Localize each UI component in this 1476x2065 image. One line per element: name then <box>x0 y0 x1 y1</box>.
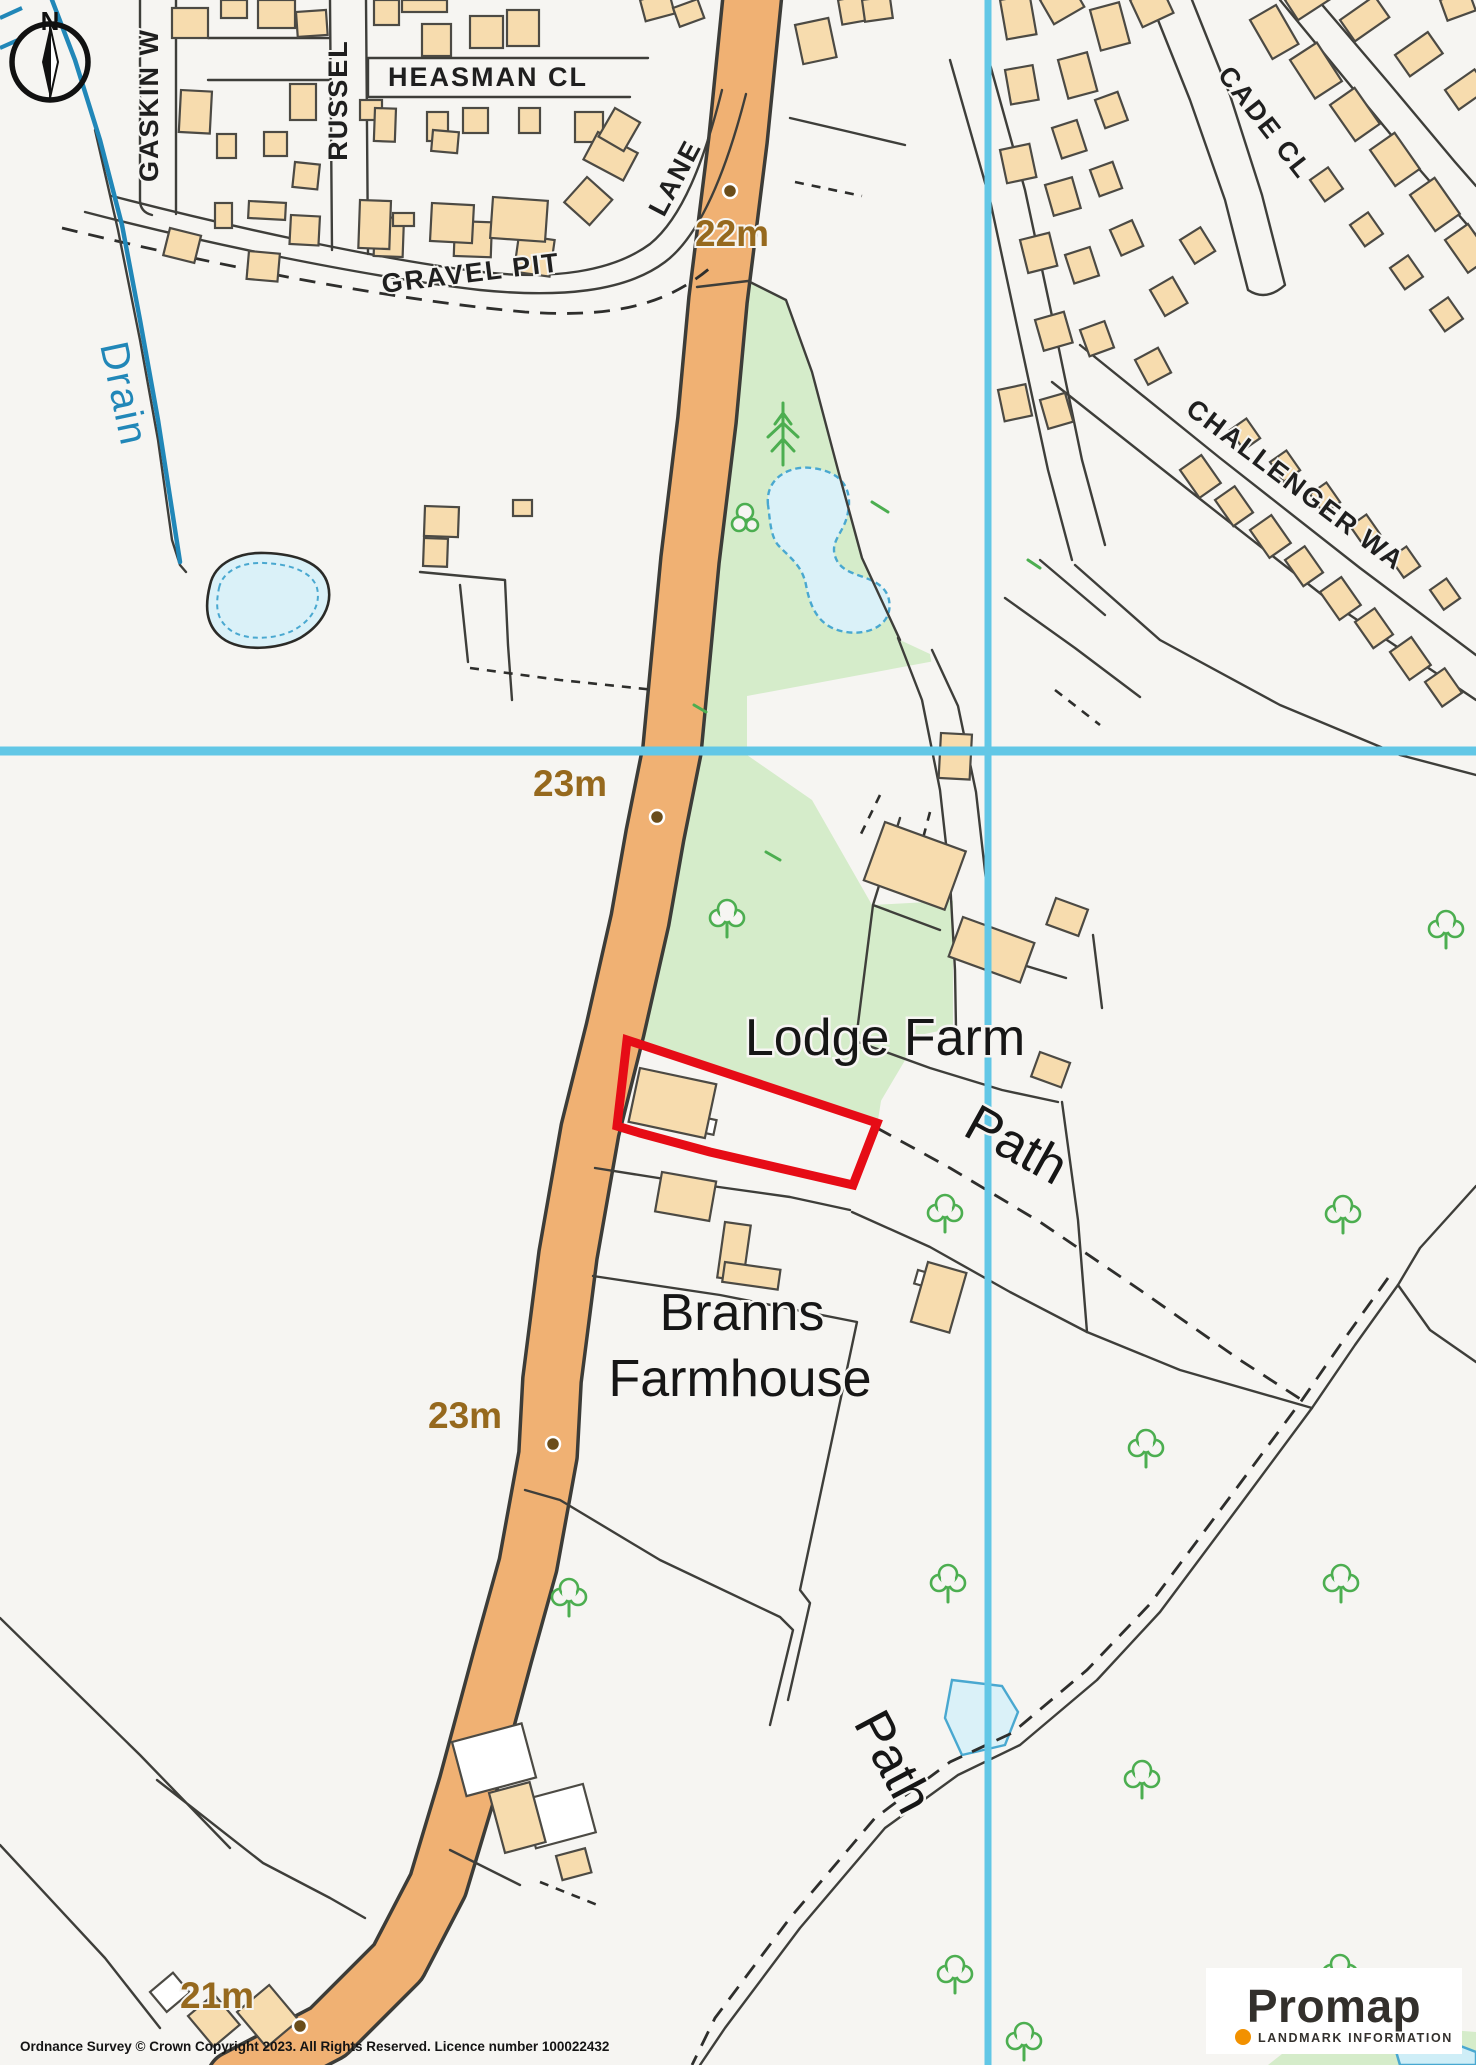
place-label-branns: Branns <box>660 1284 825 1342</box>
street-label-lane: LANE <box>643 135 708 221</box>
promap-orange-dot-icon <box>1235 2029 1251 2045</box>
place-label-farmhouse: Farmhouse <box>609 1350 872 1408</box>
elevation-label-21m: 21m <box>180 1975 254 2016</box>
compass-north-label: N <box>41 6 60 36</box>
deciduous-tree-icon <box>1007 2023 1041 2060</box>
spot-height-dot <box>546 1437 560 1451</box>
deciduous-tree-icon <box>931 1565 965 1602</box>
elevation-label-22m: 22m <box>695 213 769 254</box>
os-map-canvas: N GASKIN W RUSSEL HEASMAN CL GRAVEL PIT … <box>0 0 1476 2065</box>
elevation-label-23m-a: 23m <box>533 763 607 804</box>
map-viewport[interactable]: N GASKIN W RUSSEL HEASMAN CL GRAVEL PIT … <box>0 0 1476 2065</box>
deciduous-tree-icon <box>928 1195 962 1232</box>
promap-logo: Promap LANDMARK INFORMATION <box>1206 1968 1462 2054</box>
copyright-attribution: Ordnance Survey © Crown Copyright 2023. … <box>20 2039 609 2054</box>
deciduous-tree-icon <box>1324 1565 1358 1602</box>
deciduous-trees <box>552 900 1463 2060</box>
deciduous-tree-icon <box>552 1579 586 1616</box>
path-label-lower: Path <box>842 1701 943 1823</box>
spot-height-dot <box>650 810 664 824</box>
north-compass-icon: N <box>12 6 88 100</box>
deciduous-tree-icon <box>1125 1761 1159 1798</box>
place-label-lodge-farm: Lodge Farm <box>745 1009 1025 1067</box>
deciduous-tree-icon <box>1129 1430 1163 1467</box>
deciduous-tree-icon <box>938 1956 972 1993</box>
street-label-gaskin: GASKIN W <box>134 28 164 182</box>
elevation-label-23m-b: 23m <box>428 1395 502 1436</box>
promap-subtitle-text: LANDMARK INFORMATION <box>1258 2031 1453 2045</box>
spot-height-dot <box>723 184 737 198</box>
promap-brand-text: Promap <box>1247 1980 1421 2032</box>
street-label-heasman: HEASMAN CL <box>388 62 588 92</box>
deciduous-tree-icon <box>1326 1196 1360 1233</box>
spot-height-dot <box>293 2019 307 2033</box>
street-label-russell: RUSSEL <box>323 39 353 161</box>
deciduous-tree-icon <box>1429 911 1463 948</box>
